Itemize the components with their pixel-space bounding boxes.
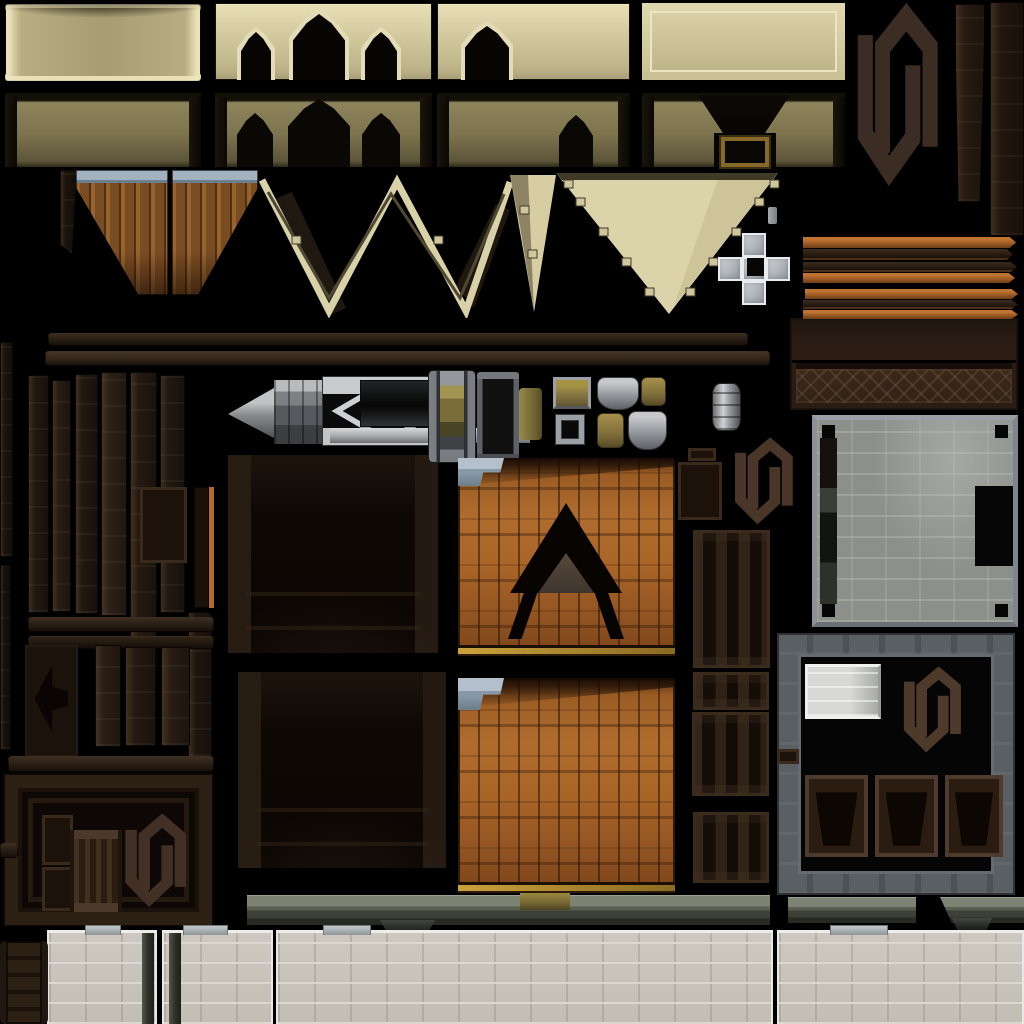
arch-silhouette-panel — [215, 93, 432, 167]
ledge-right-1 — [788, 897, 916, 923]
ledge-gold — [520, 893, 570, 910]
beam-long-upper — [48, 333, 748, 346]
plank-col-3 — [75, 374, 98, 614]
sail-big-triangle-topline — [556, 173, 778, 180]
wood-bracket-glyph-left — [118, 813, 200, 913]
plank-inner-1 — [42, 815, 73, 865]
storage-panel — [5, 775, 212, 925]
side-strip — [820, 438, 837, 604]
plank-orange-1 — [803, 237, 1016, 248]
gothic-arch-partial — [461, 21, 513, 80]
black-recess — [975, 486, 1013, 566]
brick-pillar-1 — [142, 933, 154, 1024]
pulley-gold-2 — [597, 413, 624, 448]
vault-panel-1 — [228, 455, 438, 653]
sail-stud — [564, 180, 573, 188]
plank-col-7 — [188, 612, 212, 757]
awning-wood-right — [172, 170, 258, 295]
triangle-leg-left — [508, 591, 538, 639]
shingle-door-triangle — [458, 458, 675, 656]
plank-col-4 — [101, 372, 127, 616]
plaster-panel-2 — [437, 3, 630, 80]
arch-dark-small — [559, 115, 593, 167]
khaki-band — [519, 388, 542, 440]
plank-b3 — [161, 647, 190, 746]
texture-atlas-canvas — [0, 0, 1024, 1024]
plank-col-2 — [52, 380, 71, 612]
sail-stud — [770, 180, 779, 188]
framed-plaster-panel — [642, 3, 845, 80]
pulley-gold-1 — [641, 377, 666, 406]
beam-left-1 — [28, 617, 214, 632]
metal-tab-2 — [458, 678, 504, 710]
spire-cone — [228, 388, 274, 438]
corner-pin-br — [995, 604, 1008, 617]
sail-triangles-group — [258, 166, 793, 318]
wood-column-2 — [693, 672, 769, 710]
arch-wall-panel — [215, 3, 432, 80]
arch-dark-right — [362, 113, 400, 167]
arch-dark-left — [237, 113, 273, 167]
barrel-piece — [0, 941, 48, 1024]
plank-orange-edge — [194, 487, 214, 608]
plank-orange-2 — [803, 273, 1015, 283]
ornament-panel — [790, 318, 1018, 410]
cross-square-top — [742, 233, 766, 257]
beam-rounded — [8, 756, 214, 772]
awning-wood-left — [76, 170, 168, 295]
corner-pin-bl — [822, 604, 835, 617]
corner-pin-tr — [995, 425, 1008, 438]
chimney-hood — [698, 95, 790, 137]
wall-tab-4 — [830, 925, 888, 935]
cross-square-left — [718, 257, 742, 281]
beam-long-lower — [45, 351, 770, 366]
olive-panel-1 — [5, 93, 201, 167]
crate-box — [678, 462, 722, 520]
brick-wall-2 — [162, 930, 273, 1024]
sail-stud — [434, 236, 443, 244]
awning-pole — [60, 170, 77, 254]
pew-1 — [805, 775, 868, 857]
crate-lid — [688, 448, 716, 461]
plank-dark-2 — [803, 262, 1017, 272]
plank-b1 — [95, 645, 121, 747]
wood-block-small — [140, 487, 187, 563]
pew-frame-panel — [777, 633, 1015, 895]
small-window — [556, 415, 584, 444]
sail-stud — [528, 250, 537, 258]
wall-tab-3 — [323, 925, 371, 935]
spire-shaft — [274, 380, 322, 444]
wood-bracket-glyph-frame — [897, 666, 974, 758]
sail-stud — [520, 206, 529, 214]
plank-dark-1 — [803, 249, 1013, 260]
sail-stud — [622, 258, 631, 266]
stub-block — [777, 749, 799, 764]
gothic-arch-right — [361, 27, 401, 80]
wood-column-3 — [692, 712, 769, 796]
olive-panel-2 — [437, 93, 630, 167]
wall-tab-2 — [183, 925, 228, 935]
vault-panel-2 — [238, 672, 446, 868]
wood-bracket-glyph-top — [848, 2, 956, 198]
wood-column-1 — [693, 530, 770, 668]
wood-column-4 — [693, 812, 769, 883]
triangle-leg-right — [594, 591, 624, 639]
plank-stack — [803, 237, 1018, 319]
hearth-gold-frame — [721, 137, 769, 167]
side-tab — [0, 843, 18, 858]
plank-b2 — [125, 647, 156, 746]
plank-edge-2 — [0, 565, 11, 750]
plank-edge-1 — [0, 342, 13, 557]
metal-tab — [458, 458, 504, 486]
barrel-column — [74, 830, 118, 912]
plank-inner-2 — [42, 867, 73, 911]
mount-collar — [428, 370, 476, 463]
khaki-crate — [553, 377, 591, 409]
pulley-grey-2 — [628, 411, 667, 450]
pew-3 — [945, 775, 1003, 857]
sail-stud — [755, 198, 764, 206]
gothic-arch-left — [237, 27, 275, 80]
plank-orange-4 — [803, 310, 1018, 319]
pulley-grey-1 — [597, 377, 639, 410]
sail-stud — [292, 236, 301, 244]
stone-brick-panel — [812, 415, 1018, 627]
nav-cross — [718, 233, 790, 305]
shingle-door-plain — [458, 678, 675, 893]
sail-stud — [645, 288, 654, 296]
brick-wall-1 — [47, 930, 157, 1024]
ledge-main — [247, 895, 770, 925]
plank-orange-3 — [805, 289, 1018, 299]
breech-block — [477, 372, 519, 461]
sail-stud — [686, 288, 695, 296]
plank-tall-1 — [955, 4, 985, 202]
cross-center-hole — [747, 258, 764, 276]
gothic-arch-center — [289, 9, 349, 80]
brick-wall-3 — [276, 930, 773, 1024]
brick-window — [805, 664, 881, 719]
pew-2 — [875, 775, 938, 857]
cross-pin — [768, 207, 777, 224]
corner-pin-tl — [822, 425, 835, 438]
brick-pillar-2 — [169, 933, 181, 1024]
plaster-panel-1 — [5, 4, 201, 81]
arch-dark-center — [288, 99, 350, 167]
arrow-plank — [25, 645, 78, 757]
sail-stud — [709, 258, 718, 266]
wood-bracket-glyph-mid — [728, 437, 806, 530]
plank-col-1 — [28, 375, 49, 613]
plank-tall-2 — [990, 2, 1024, 236]
cross-square-right — [766, 257, 790, 281]
sail-stud — [599, 228, 608, 236]
cross-square-bottom — [742, 281, 766, 305]
fireplace-panel — [642, 93, 845, 167]
brick-wall-4 — [777, 930, 1024, 1024]
sail-stud — [576, 198, 585, 206]
cylinder — [712, 383, 741, 431]
plank-dark-3 — [803, 300, 1018, 309]
wall-tab-1 — [85, 925, 121, 935]
